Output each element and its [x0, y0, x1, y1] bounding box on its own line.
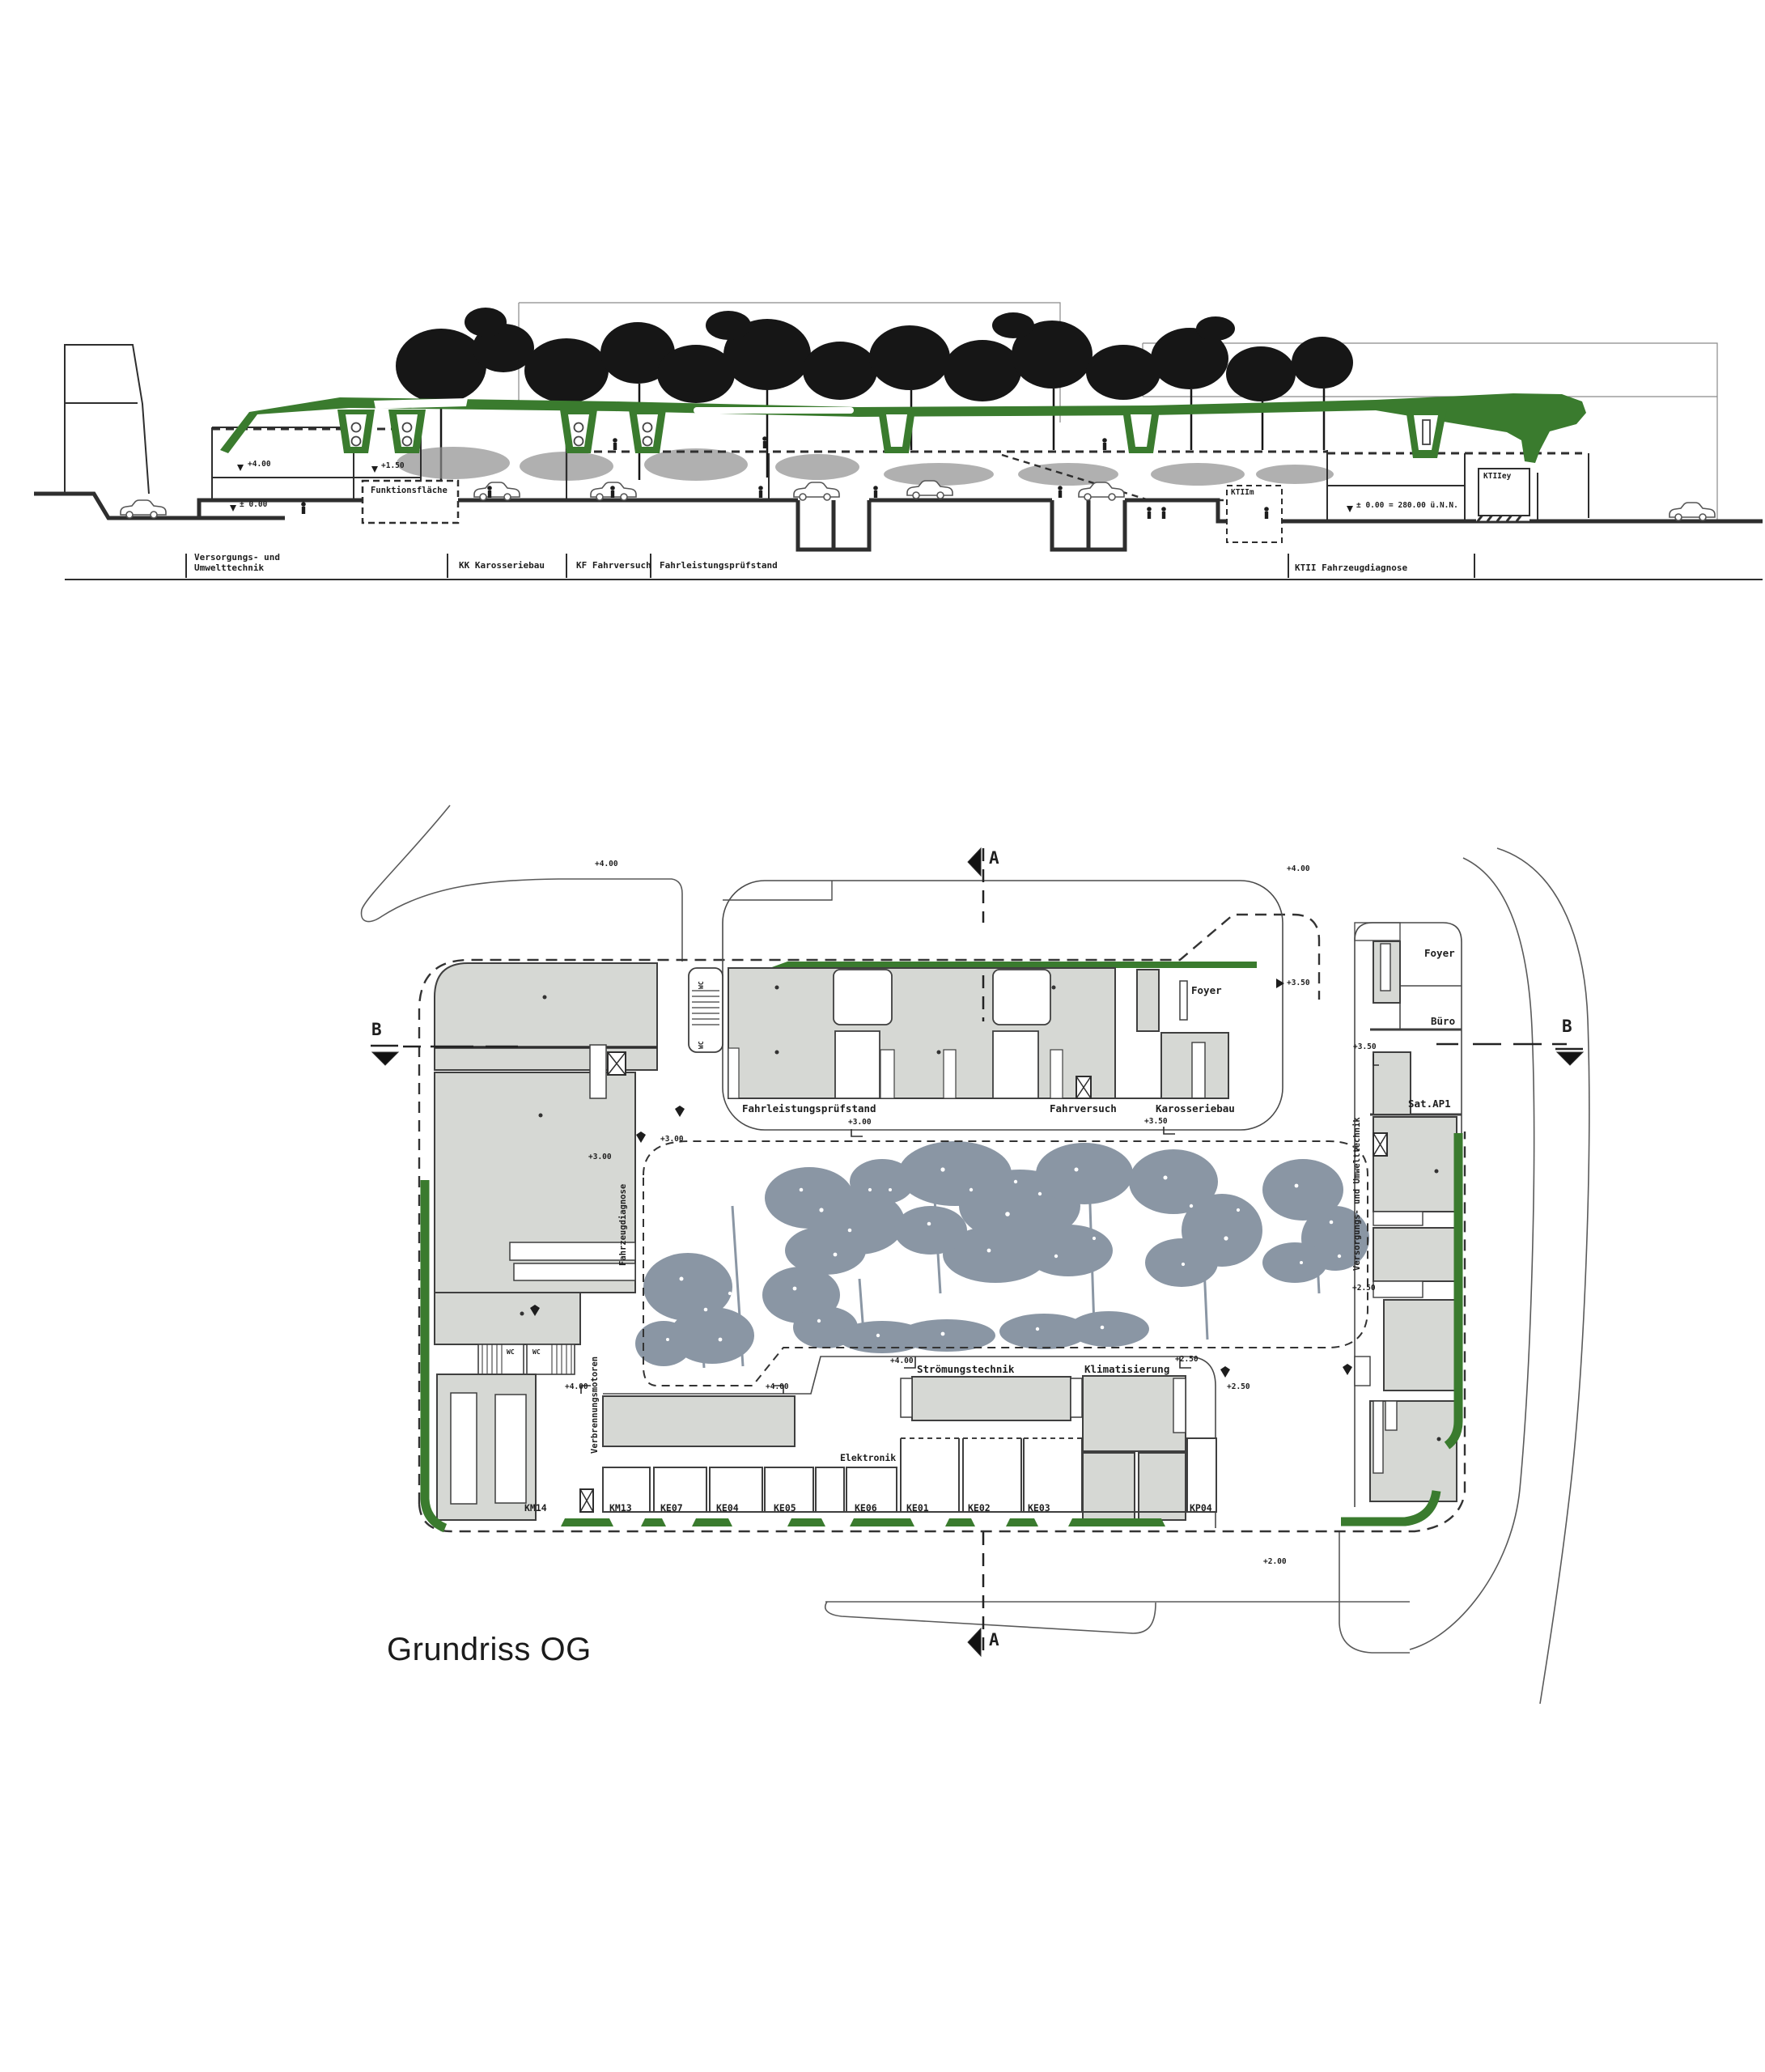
plan-elevation: +4.00: [1287, 864, 1310, 873]
section-marker-b-icon: [1557, 1052, 1583, 1065]
plan-elevation: +4.00: [595, 860, 618, 868]
zone-label-fahrleistung: Fahrleistungsprüfstand: [660, 560, 778, 571]
plan-title: Grundriss OG: [387, 1630, 592, 1669]
klimatisierung-label: Klimatisierung: [1084, 1363, 1169, 1375]
plan-elevation: +3.50: [1144, 1117, 1168, 1126]
plan-elevation: +3.00: [660, 1135, 684, 1144]
section-marker-b-icon: [372, 1052, 398, 1065]
zone-label-karosseriebau: KK Karosseriebau: [459, 560, 545, 571]
ktii-ey-label: KTIIey: [1483, 472, 1511, 481]
plan-elevation: +2.50: [1227, 1382, 1250, 1391]
plan-elevation: +4.00: [766, 1382, 789, 1391]
wc-label: WC: [507, 1348, 515, 1357]
top-building: [689, 881, 1283, 1130]
zone-label-fahrversuch: KF Fahrversuch: [576, 560, 651, 571]
bottom-building: [561, 1357, 1216, 1528]
elektronik-label: Elektronik: [840, 1453, 896, 1464]
architectural-sheet: Versorgungs- und Umwelttechnik KK Kaross…: [0, 0, 1765, 2072]
section-marker-a-label: A: [989, 848, 999, 868]
hall-fahrleistung-label: Fahrleistungsprüfstand: [742, 1102, 876, 1115]
ktii-m-label: KTIIm: [1231, 488, 1254, 497]
drawing-linework: [0, 0, 1765, 2072]
wc-label: WC: [698, 981, 706, 989]
section-marker-b-label: B: [371, 1020, 382, 1040]
cell-label: KM13: [609, 1503, 632, 1514]
cell-label: KE05: [774, 1503, 796, 1514]
verbrennungsmotoren-label: Verbrennungsmotoren: [590, 1357, 600, 1454]
section-marker-b-label: B: [1562, 1017, 1572, 1037]
section-datum: ± 0.00 = 280.00 ü.N.N.: [1356, 501, 1458, 510]
plan-elevation: +3.00: [848, 1118, 872, 1127]
zone-label-versorgung: Versorgungs- und Umwelttechnik: [194, 552, 285, 573]
plan-elevation: +3.00: [588, 1153, 612, 1161]
floor-plan-drawing: [362, 805, 1589, 1704]
cell-label: KE07: [660, 1503, 683, 1514]
cell-label: KE06: [855, 1503, 877, 1514]
top-foyer-label: Foyer: [1191, 984, 1222, 996]
versorgung-vertical-label: Versorgungs- und Umwelttechnik: [1352, 1117, 1363, 1271]
section-elevation-zero: ± 0.00: [240, 500, 267, 509]
section-marker-a-label: A: [989, 1630, 999, 1650]
cell-label: KP04: [1190, 1503, 1212, 1514]
plan-elevation: +2.00: [1263, 1557, 1287, 1566]
section-elevation-400: +4.00: [248, 460, 271, 469]
sat-ap1-label: Sat.AP1: [1408, 1098, 1451, 1110]
plan-elevation: +3.50: [1353, 1042, 1377, 1051]
plan-elevation: +2.50: [1175, 1355, 1199, 1364]
stroemungstechnik-label: Strömungstechnik: [917, 1363, 1014, 1375]
plan-elevation: +3.50: [1287, 979, 1310, 987]
hall-karosseriebau-label: Karosseriebau: [1156, 1102, 1235, 1115]
cell-label: KE01: [906, 1503, 929, 1514]
zone-label-fahrzeugdiagnose: KTII Fahrzeugdiagnose: [1295, 563, 1407, 573]
fahrzeugdiagnose-label: Fahrzeugdiagnose: [618, 1184, 629, 1266]
section-marker-a-icon: [968, 1628, 981, 1656]
cell-label: KE04: [716, 1503, 739, 1514]
plan-elevation: +4.00: [890, 1357, 914, 1365]
site-section-drawing: [34, 303, 1763, 580]
cell-label: KE03: [1028, 1503, 1050, 1514]
courtyard-trees: [635, 1141, 1369, 1368]
plan-elevation: +2.50: [1352, 1284, 1376, 1293]
hall-fahrversuch-label: Fahrversuch: [1050, 1102, 1117, 1115]
section-elevation-150: +1.50: [381, 461, 405, 470]
green-edge-strips: [561, 1518, 1165, 1526]
wc-label: WC: [698, 1041, 706, 1049]
section-trees: [396, 308, 1353, 403]
cell-km14-label: KM14: [524, 1503, 547, 1514]
buero-label: Büro: [1431, 1015, 1455, 1027]
cell-label: KE02: [968, 1503, 991, 1514]
funktionsflaeche-label: Funktionsfläche: [371, 486, 448, 496]
wc-label: WC: [532, 1348, 541, 1357]
plan-elevation: +4.00: [565, 1382, 588, 1391]
right-foyer-label: Foyer: [1424, 947, 1455, 959]
section-marker-a-icon: [968, 848, 981, 876]
